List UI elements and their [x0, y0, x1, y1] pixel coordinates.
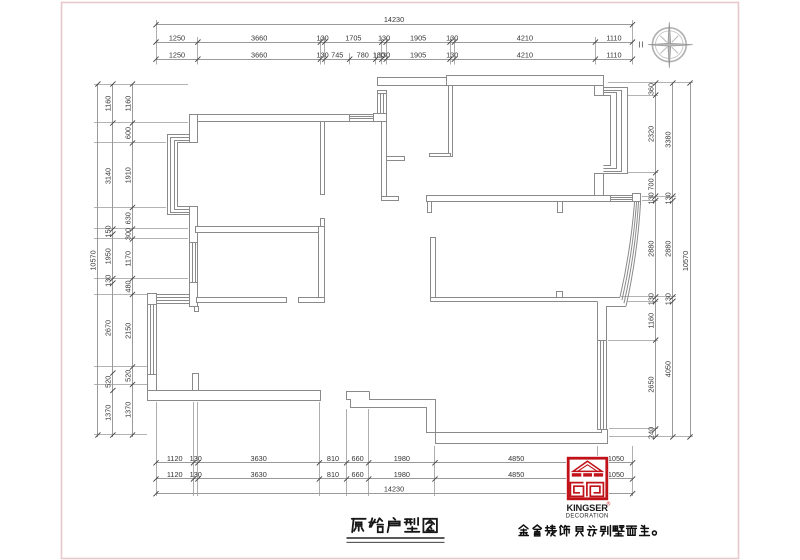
svg-text:14230: 14230: [384, 15, 404, 24]
svg-text:1110: 1110: [606, 33, 621, 42]
svg-text:3630: 3630: [251, 470, 267, 479]
svg-text:4210: 4210: [517, 33, 533, 42]
svg-text:1050: 1050: [608, 470, 624, 479]
svg-text:3630: 3630: [251, 454, 267, 463]
svg-text:1905: 1905: [410, 33, 426, 42]
svg-text:130: 130: [664, 293, 673, 305]
svg-text:1370: 1370: [104, 405, 113, 421]
svg-text:130: 130: [664, 192, 673, 204]
svg-text:130: 130: [317, 33, 329, 42]
svg-text:1050: 1050: [608, 454, 624, 463]
svg-text:1120: 1120: [167, 470, 183, 479]
svg-text:520: 520: [104, 376, 113, 388]
svg-text:240: 240: [647, 427, 656, 439]
svg-text:14230: 14230: [384, 485, 404, 494]
svg-text:1160: 1160: [647, 313, 656, 329]
svg-text:810: 810: [327, 470, 339, 479]
svg-text:4210: 4210: [517, 50, 533, 59]
svg-text:3660: 3660: [251, 33, 267, 42]
svg-text:700: 700: [647, 178, 656, 190]
svg-text:780: 780: [357, 50, 369, 59]
svg-text:1120: 1120: [167, 454, 183, 463]
svg-text:745: 745: [331, 50, 343, 59]
svg-text:480: 480: [123, 280, 132, 292]
svg-text:660: 660: [352, 470, 364, 479]
svg-text:1980: 1980: [394, 470, 410, 479]
svg-text:1170: 1170: [123, 251, 132, 267]
svg-text:1705: 1705: [345, 33, 361, 42]
svg-text:130: 130: [647, 293, 656, 305]
svg-text:1160: 1160: [123, 96, 132, 112]
svg-text:360: 360: [647, 83, 656, 95]
svg-text:DECORATION: DECORATION: [566, 513, 609, 519]
svg-text:2320: 2320: [647, 126, 656, 142]
svg-text:130: 130: [378, 50, 390, 59]
svg-text:3380: 3380: [664, 131, 673, 147]
svg-text:660: 660: [352, 454, 364, 463]
svg-text:1950: 1950: [104, 248, 113, 264]
svg-text:2150: 2150: [123, 323, 132, 339]
svg-text:4850: 4850: [508, 470, 524, 479]
svg-text:130: 130: [378, 33, 390, 42]
svg-text:130: 130: [446, 33, 458, 42]
svg-text:10570: 10570: [681, 251, 690, 271]
svg-text:630: 630: [123, 212, 132, 224]
svg-text:810: 810: [327, 454, 339, 463]
svg-text:600: 600: [123, 127, 132, 139]
svg-text:130: 130: [104, 275, 113, 287]
svg-text:130: 130: [647, 192, 656, 204]
svg-text:3140: 3140: [104, 168, 113, 184]
svg-text:4050: 4050: [664, 361, 673, 377]
svg-text:1110: 1110: [606, 50, 621, 59]
svg-text:3660: 3660: [251, 50, 267, 59]
svg-text:1905: 1905: [410, 50, 426, 59]
svg-text:4850: 4850: [508, 454, 524, 463]
svg-text:2880: 2880: [664, 241, 673, 257]
svg-text:1250: 1250: [169, 33, 185, 42]
svg-text:1980: 1980: [394, 454, 410, 463]
svg-text:300: 300: [123, 228, 132, 240]
svg-text:150: 150: [104, 225, 113, 237]
svg-text:130: 130: [190, 470, 202, 479]
svg-text:130: 130: [190, 454, 202, 463]
svg-text:1910: 1910: [123, 167, 132, 183]
svg-text:KINGSER: KINGSER: [567, 503, 609, 513]
svg-text:520: 520: [123, 370, 132, 382]
svg-text:2670: 2670: [104, 320, 113, 336]
svg-text:1370: 1370: [123, 402, 132, 418]
svg-text:®: ®: [607, 501, 611, 508]
svg-text:130: 130: [317, 50, 329, 59]
svg-text:2650: 2650: [647, 376, 656, 392]
svg-text:10570: 10570: [89, 250, 98, 270]
svg-text:130: 130: [446, 50, 458, 59]
svg-text:2880: 2880: [647, 241, 656, 257]
svg-text:1250: 1250: [169, 50, 185, 59]
svg-text:1160: 1160: [104, 96, 113, 112]
